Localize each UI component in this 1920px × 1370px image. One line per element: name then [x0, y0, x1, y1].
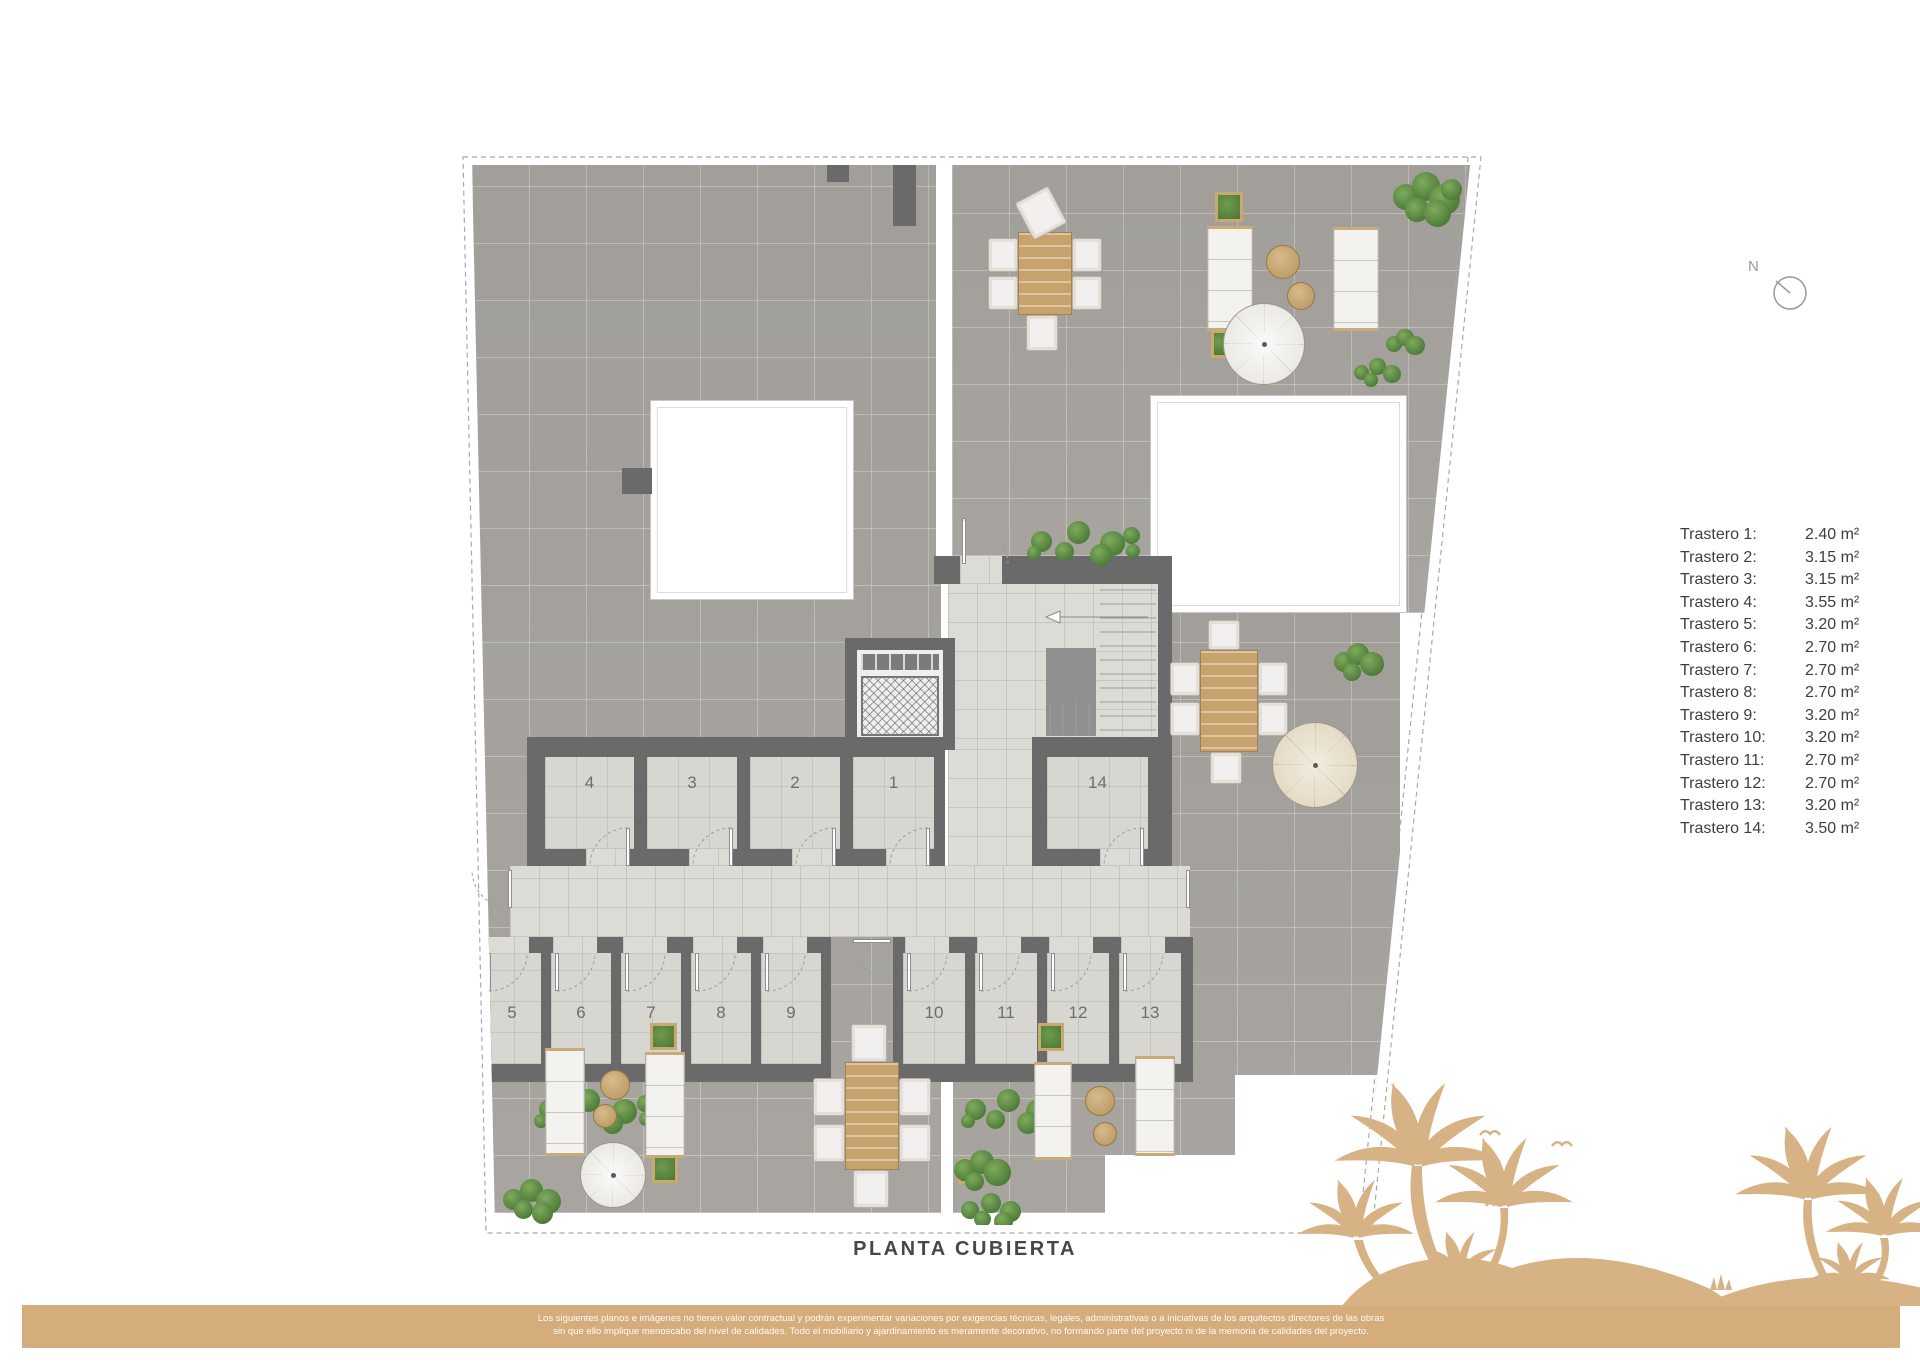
- dining-table: [845, 1062, 899, 1170]
- legend-label: Trastero 1:: [1680, 524, 1805, 547]
- shrub: [1123, 527, 1140, 544]
- legend-row: Trastero 4:3.55 m²: [1680, 592, 1875, 615]
- door-leaf: [765, 953, 769, 991]
- palm-trees-graphic: [1298, 1082, 1920, 1306]
- door-opening: [905, 937, 949, 954]
- legend-value: 3.20 m²: [1805, 795, 1875, 818]
- storage-room-number: 4: [545, 773, 634, 793]
- shrub: [1027, 546, 1041, 560]
- door-opening: [763, 937, 807, 954]
- storage-room-3: [647, 757, 737, 849]
- chair: [813, 1124, 845, 1162]
- shrub-cluster: [956, 1190, 1022, 1226]
- legend-label: Trastero 9:: [1680, 705, 1805, 728]
- shrub-cluster: [498, 1176, 556, 1218]
- door-opening: [553, 937, 597, 954]
- chair: [899, 1124, 931, 1162]
- roof-vent: [622, 468, 652, 494]
- legend-label: Trastero 7:: [1680, 660, 1805, 683]
- legend-label: Trastero 8:: [1680, 682, 1805, 705]
- shrub: [981, 1193, 1001, 1213]
- elevator-cab: [861, 676, 939, 736]
- shrub: [1343, 663, 1361, 681]
- storage-room-number: 6: [551, 1003, 611, 1023]
- parasol: [1272, 722, 1358, 808]
- grass-tuft: [1630, 1284, 1642, 1296]
- legend-row: Trastero 2:3.15 m²: [1680, 547, 1875, 570]
- door-opening: [623, 937, 667, 954]
- storage-room-number: 8: [691, 1003, 751, 1023]
- legend-value: 3.20 m²: [1805, 614, 1875, 637]
- elevator-machinery: [861, 654, 939, 670]
- legend-value: 3.20 m²: [1805, 727, 1875, 750]
- shrub-cluster: [1388, 168, 1450, 220]
- roof-step-cutout: [1105, 1155, 1405, 1215]
- patio-void-left: [650, 400, 854, 600]
- north-label: N: [1748, 258, 1759, 275]
- door-opening: [792, 849, 836, 866]
- disclaimer-line-2: sin que ello implique menoscabo del nive…: [22, 1325, 1900, 1338]
- legend-label: Trastero 13:: [1680, 795, 1805, 818]
- door-leaf: [832, 828, 836, 866]
- legend-label: Trastero 2:: [1680, 547, 1805, 570]
- grass-tuft: [1710, 1274, 1732, 1290]
- door-leaf: [907, 953, 911, 991]
- side-table: [593, 1104, 617, 1128]
- storage-room-number: 12: [1047, 1003, 1109, 1023]
- chair: [1258, 662, 1288, 696]
- door-leaf: [962, 518, 966, 564]
- disclaimer-line-1: Los siguientes planos e imágenes no tien…: [22, 1312, 1900, 1325]
- chair: [1210, 752, 1242, 784]
- sun-lounger: [1034, 1062, 1072, 1160]
- bird-icon: [1480, 1131, 1572, 1206]
- legend-label: Trastero 5:: [1680, 614, 1805, 637]
- legend-row: Trastero 13:3.20 m²: [1680, 795, 1875, 818]
- legend-value: 2.70 m²: [1805, 637, 1875, 660]
- parasol: [1223, 303, 1305, 385]
- page-title: PLANTA CUBIERTA: [840, 1238, 1090, 1261]
- storage-room-number: 13: [1119, 1003, 1181, 1023]
- legend-value: 3.15 m²: [1805, 547, 1875, 570]
- legend-row: Trastero 11:2.70 m²: [1680, 750, 1875, 773]
- shrub: [1405, 336, 1424, 355]
- parasol: [580, 1142, 646, 1208]
- door-leaf: [979, 953, 983, 991]
- sun-lounger: [1135, 1056, 1175, 1156]
- chimney: [827, 162, 849, 182]
- legend-label: Trastero 10:: [1680, 727, 1805, 750]
- legend-label: Trastero 4:: [1680, 592, 1805, 615]
- chair: [1170, 702, 1200, 736]
- legend-row: Trastero 1:2.40 m²: [1680, 524, 1875, 547]
- shrub-cluster: [1022, 518, 1140, 560]
- legend-value: 3.20 m²: [1805, 705, 1875, 728]
- chair: [851, 1024, 887, 1062]
- storage-room-2: [750, 757, 840, 849]
- shrub: [1067, 521, 1090, 544]
- side-table: [1266, 245, 1300, 279]
- legend-label: Trastero 11:: [1680, 750, 1805, 773]
- door-leaf: [853, 939, 891, 943]
- shrub-cluster: [1383, 326, 1417, 358]
- shrub-cluster: [1350, 356, 1400, 386]
- patio-void-right: [1150, 395, 1407, 613]
- legend-value: 2.40 m²: [1805, 524, 1875, 547]
- compass-icon: [1774, 277, 1806, 309]
- door-leaf: [1051, 953, 1055, 991]
- legend-label: Trastero 14:: [1680, 818, 1805, 841]
- legend-label: Trastero 6:: [1680, 637, 1805, 660]
- legend-label: Trastero 3:: [1680, 569, 1805, 592]
- shrub-cluster: [950, 1146, 1002, 1190]
- legend-value: 3.15 m²: [1805, 569, 1875, 592]
- legend-value: 2.70 m²: [1805, 660, 1875, 683]
- storage-room-number: 9: [761, 1003, 821, 1023]
- door-leaf: [1140, 828, 1144, 866]
- dining-table: [1018, 232, 1072, 315]
- shrub: [994, 1212, 1013, 1231]
- storage-room-4: [545, 757, 634, 849]
- planter: [1038, 1023, 1064, 1051]
- door-leaf: [695, 953, 699, 991]
- door-leaf: [1123, 953, 1127, 991]
- door-leaf: [555, 953, 559, 991]
- door-opening: [586, 849, 630, 866]
- legend-row: Trastero 6:2.70 m²: [1680, 637, 1875, 660]
- dining-table: [1200, 650, 1258, 752]
- door-leaf: [729, 828, 733, 866]
- palm-ground: [1700, 1277, 1920, 1306]
- stair-landing: [1046, 648, 1096, 736]
- door-leaf: [1186, 870, 1190, 908]
- door-opening: [689, 849, 733, 866]
- corridor: [510, 866, 1190, 937]
- chair: [1258, 702, 1288, 736]
- legend-row: Trastero 8:2.70 m²: [1680, 682, 1875, 705]
- door-opening: [485, 937, 529, 954]
- shrub: [532, 1202, 554, 1224]
- door-leaf: [626, 828, 630, 866]
- legend-row: Trastero 12:2.70 m²: [1680, 773, 1875, 796]
- door-opening: [1100, 849, 1144, 866]
- door-opening: [1049, 937, 1093, 954]
- shrub: [965, 1172, 985, 1192]
- shrub: [1126, 544, 1140, 558]
- door-opening: [886, 849, 930, 866]
- footer-disclaimer-band: Los siguientes planos e imágenes no tien…: [22, 1305, 1900, 1348]
- storage-room-number: 1: [853, 773, 934, 793]
- shrub-cluster: [1330, 640, 1376, 680]
- shrub: [984, 1159, 1010, 1185]
- legend-value: 2.70 m²: [1805, 773, 1875, 796]
- storage-room-number: 3: [647, 773, 737, 793]
- sun-lounger: [545, 1048, 585, 1156]
- grass-tuft: [1585, 1275, 1607, 1292]
- chair: [813, 1078, 845, 1116]
- chair: [1072, 276, 1102, 310]
- core-wall-top: [1000, 556, 1172, 584]
- stair-lobby-lower: [948, 739, 1042, 866]
- legend-row: Trastero 10:3.20 m²: [1680, 727, 1875, 750]
- door-leaf: [625, 953, 629, 991]
- chair: [899, 1078, 931, 1116]
- door-opening: [977, 937, 1021, 954]
- shrub: [1383, 365, 1401, 383]
- chair: [1072, 238, 1102, 272]
- legend: Trastero 1:2.40 m²Trastero 2:3.15 m²Tras…: [1680, 524, 1875, 840]
- legend-row: Trastero 9:3.20 m²: [1680, 705, 1875, 728]
- chair: [1170, 662, 1200, 696]
- shrub: [1055, 542, 1074, 561]
- sun-lounger: [1333, 227, 1379, 331]
- storage-room-number: 5: [483, 1003, 541, 1023]
- chair: [1208, 620, 1240, 650]
- storage-room-14: [1047, 757, 1148, 849]
- storage-room-1: [853, 757, 934, 849]
- chair: [988, 276, 1018, 310]
- legend-value: 2.70 m²: [1805, 750, 1875, 773]
- shrub: [961, 1114, 975, 1128]
- legend-row: Trastero 14:3.50 m²: [1680, 818, 1875, 841]
- palm-ground: [1342, 1258, 1730, 1306]
- legend-row: Trastero 7:2.70 m²: [1680, 660, 1875, 683]
- door-opening: [1121, 937, 1165, 954]
- shrub: [997, 1089, 1020, 1112]
- building-floorplan: 1234567891011121314: [0, 0, 1920, 1370]
- storage-room-number: 11: [975, 1003, 1037, 1023]
- side-table: [1287, 282, 1315, 310]
- door-leaf: [926, 828, 930, 866]
- chimney: [893, 160, 916, 226]
- storage-room-number: 2: [750, 773, 840, 793]
- side-table: [600, 1070, 630, 1100]
- chair: [1026, 315, 1058, 351]
- side-table: [1093, 1122, 1117, 1146]
- legend-row: Trastero 3:3.15 m²: [1680, 569, 1875, 592]
- shrub: [1090, 544, 1112, 566]
- planter: [1215, 192, 1243, 222]
- door-leaf: [487, 953, 491, 991]
- roof-step-cutout: [1235, 1075, 1405, 1157]
- sun-lounger: [645, 1052, 685, 1158]
- legend-value: 3.50 m²: [1805, 818, 1875, 841]
- shrub: [514, 1200, 533, 1219]
- legend-label: Trastero 12:: [1680, 773, 1805, 796]
- door-opening: [960, 556, 1002, 584]
- planter: [650, 1023, 677, 1050]
- storage-room-number: 7: [621, 1003, 681, 1023]
- legend-value: 3.55 m²: [1805, 592, 1875, 615]
- door-opening: [693, 937, 737, 954]
- shrub: [986, 1110, 1005, 1129]
- storage-room-number: 14: [1047, 773, 1148, 793]
- planter: [652, 1155, 678, 1183]
- storage-room-number: 10: [903, 1003, 965, 1023]
- shrub: [1364, 373, 1378, 387]
- legend-value: 2.70 m²: [1805, 682, 1875, 705]
- legend-row: Trastero 5:3.20 m²: [1680, 614, 1875, 637]
- chair: [988, 238, 1018, 272]
- side-table: [1085, 1086, 1115, 1116]
- shrub: [974, 1211, 990, 1227]
- door-leaf: [508, 870, 512, 908]
- chair: [853, 1170, 889, 1208]
- roof-joint-gap: [936, 165, 952, 557]
